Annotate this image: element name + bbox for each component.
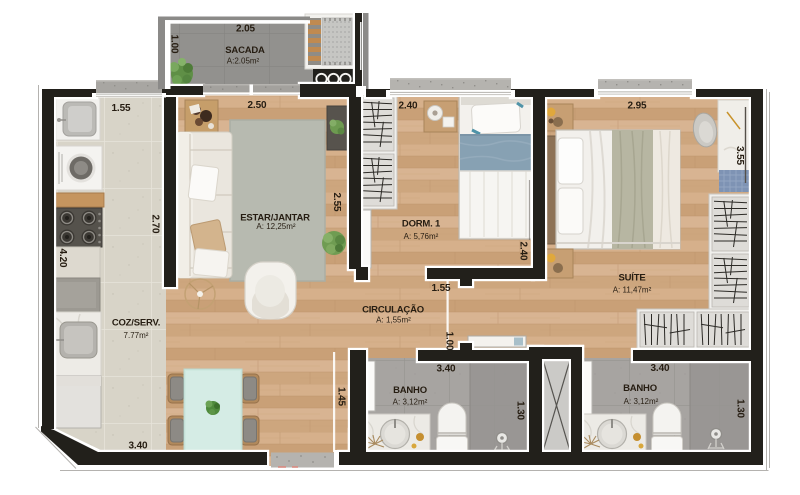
svg-text:A: 11,47m²: A: 11,47m² xyxy=(613,286,652,295)
svg-text:3.40: 3.40 xyxy=(650,363,670,374)
svg-text:2.70: 2.70 xyxy=(149,214,160,234)
svg-text:1.00: 1.00 xyxy=(168,34,179,54)
svg-text:1.00: 1.00 xyxy=(443,331,454,351)
svg-text:1.30: 1.30 xyxy=(734,399,745,419)
svg-text:SACADA: SACADA xyxy=(225,45,265,56)
svg-text:BANHO: BANHO xyxy=(393,385,427,396)
svg-text:A: 3,12m²: A: 3,12m² xyxy=(393,397,428,406)
svg-text:3.55: 3.55 xyxy=(734,146,745,166)
svg-text:2.55: 2.55 xyxy=(331,192,342,212)
svg-text:1.55: 1.55 xyxy=(111,103,131,114)
svg-text:2.95: 2.95 xyxy=(627,100,647,111)
svg-text:DORM. 1: DORM. 1 xyxy=(402,219,441,230)
svg-text:3.40: 3.40 xyxy=(436,363,456,374)
svg-text:1.55: 1.55 xyxy=(431,283,451,294)
svg-text:3.40: 3.40 xyxy=(128,441,148,452)
svg-text:1.30: 1.30 xyxy=(514,401,525,421)
svg-text:A: 5,76m²: A: 5,76m² xyxy=(404,232,439,241)
svg-text:7.77m²: 7.77m² xyxy=(124,331,149,340)
svg-text:2.40: 2.40 xyxy=(398,100,418,111)
svg-text:A:2.05m²: A:2.05m² xyxy=(227,57,260,66)
svg-text:A: 1,55m²: A: 1,55m² xyxy=(376,315,411,324)
svg-text:A: 12,25m²: A: 12,25m² xyxy=(256,222,295,231)
svg-text:2.40: 2.40 xyxy=(517,241,528,261)
svg-text:A: 3,12m²: A: 3,12m² xyxy=(624,397,659,406)
svg-text:BANHO: BANHO xyxy=(623,383,657,394)
svg-text:2.50: 2.50 xyxy=(247,100,267,111)
svg-text:2.05: 2.05 xyxy=(236,23,256,34)
svg-text:4.20: 4.20 xyxy=(57,248,68,268)
svg-text:COZ/SERV.: COZ/SERV. xyxy=(112,318,160,329)
svg-text:CIRCULAÇÃO: CIRCULAÇÃO xyxy=(362,304,424,315)
svg-text:1.45: 1.45 xyxy=(336,387,347,407)
svg-text:SUÍTE: SUÍTE xyxy=(619,273,646,284)
